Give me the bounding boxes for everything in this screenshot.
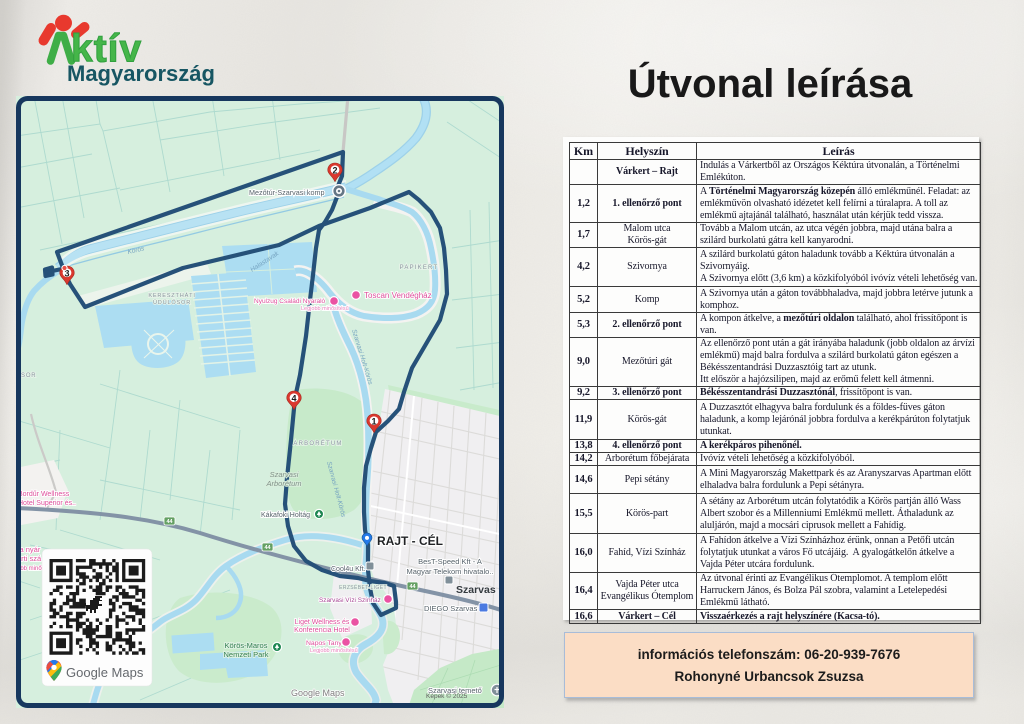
svg-text:Magyarország: Magyarország [67,61,215,86]
